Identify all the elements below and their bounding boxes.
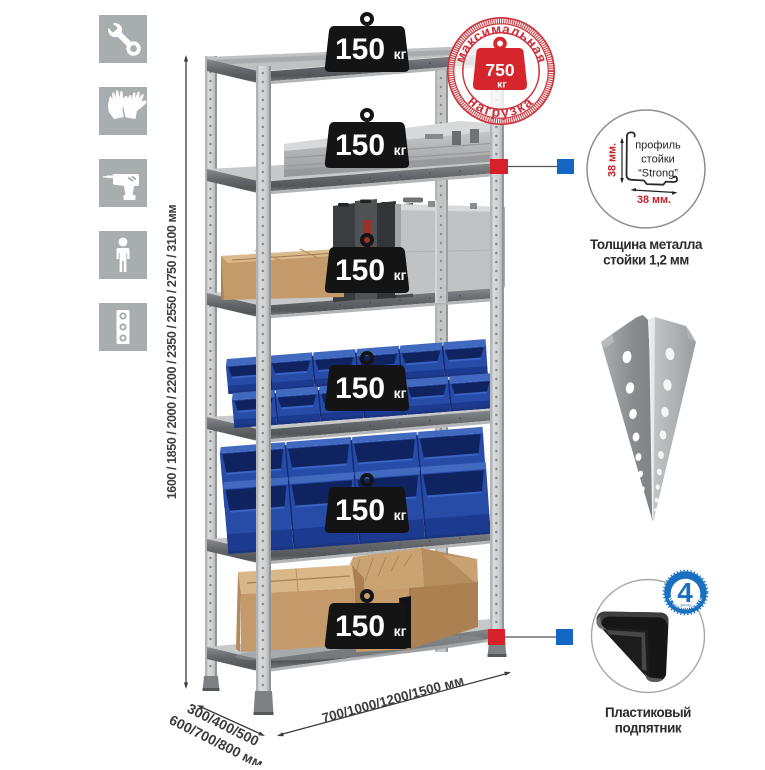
svg-text:150: 150 <box>335 494 385 527</box>
svg-text:кг: кг <box>394 385 407 401</box>
svg-text:профиль: профиль <box>635 140 681 152</box>
svg-text:Пластиковый: Пластиковый <box>605 705 691 720</box>
svg-text:кг: кг <box>394 507 407 523</box>
svg-text:150: 150 <box>335 254 385 287</box>
svg-text:кг: кг <box>394 623 407 639</box>
svg-text:“Strong”: “Strong” <box>638 168 678 180</box>
svg-text:150: 150 <box>335 372 385 405</box>
svg-text:Толщина металла: Толщина металла <box>590 237 703 252</box>
svg-text:кг: кг <box>394 142 407 158</box>
svg-text:38 мм.: 38 мм. <box>607 143 619 177</box>
svg-text:38 мм.: 38 мм. <box>637 194 671 206</box>
svg-text:стойки 1,2 мм: стойки 1,2 мм <box>603 253 689 268</box>
svg-text:подпятник: подпятник <box>615 721 682 736</box>
svg-text:150: 150 <box>335 33 385 66</box>
svg-text:750: 750 <box>485 60 514 80</box>
svg-text:кг: кг <box>394 46 407 62</box>
svg-text:стойки: стойки <box>641 154 675 166</box>
svg-text:1600 / 1850 / 2000 / 2200 / 23: 1600 / 1850 / 2000 / 2200 / 2350 / 2550 … <box>165 205 179 500</box>
svg-text:кг: кг <box>394 267 407 283</box>
svg-text:150: 150 <box>335 129 385 162</box>
svg-text:кг: кг <box>497 79 507 91</box>
svg-text:150: 150 <box>335 610 385 643</box>
